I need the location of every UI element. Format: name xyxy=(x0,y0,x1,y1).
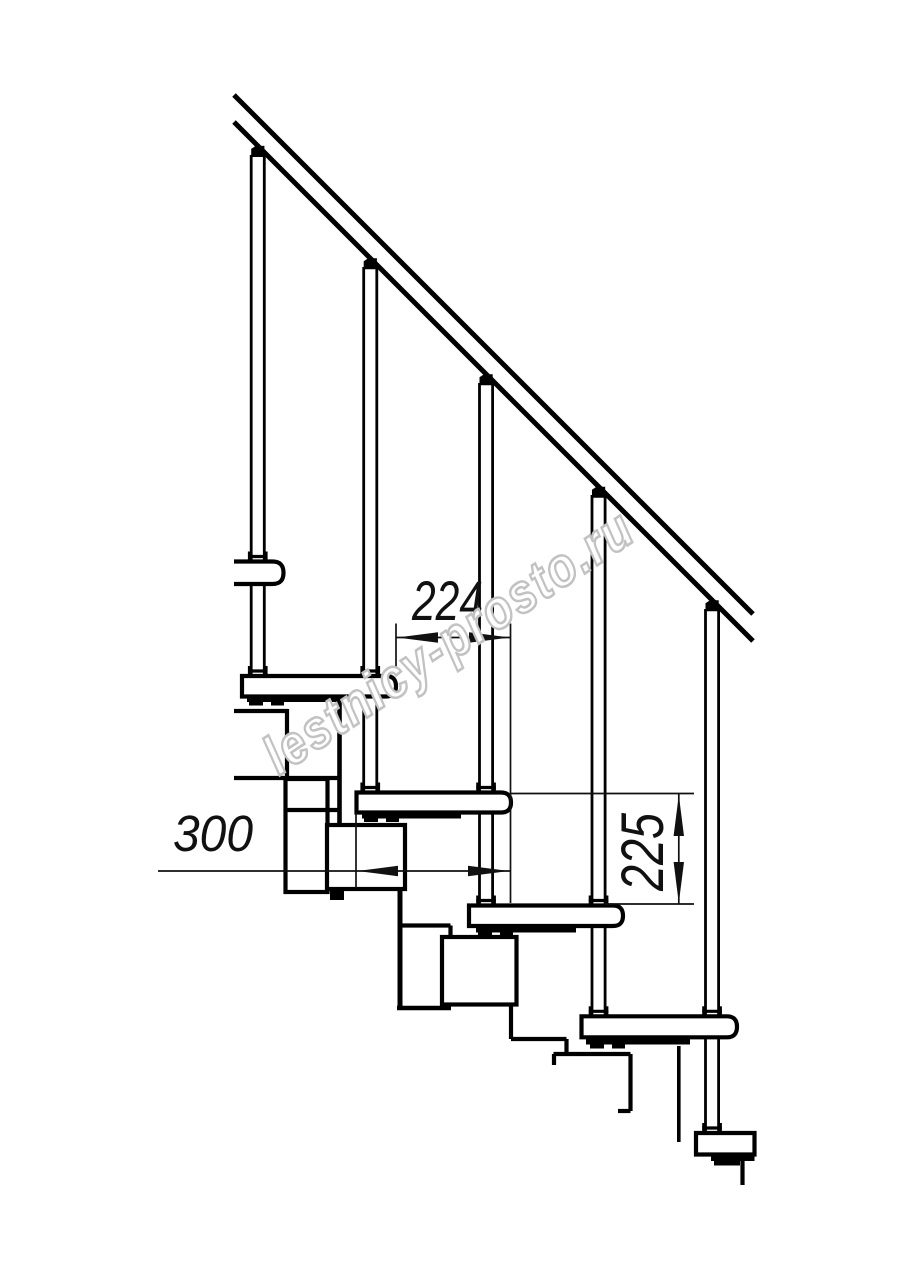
svg-text:225: 225 xyxy=(609,813,676,892)
svg-text:300: 300 xyxy=(173,805,253,862)
